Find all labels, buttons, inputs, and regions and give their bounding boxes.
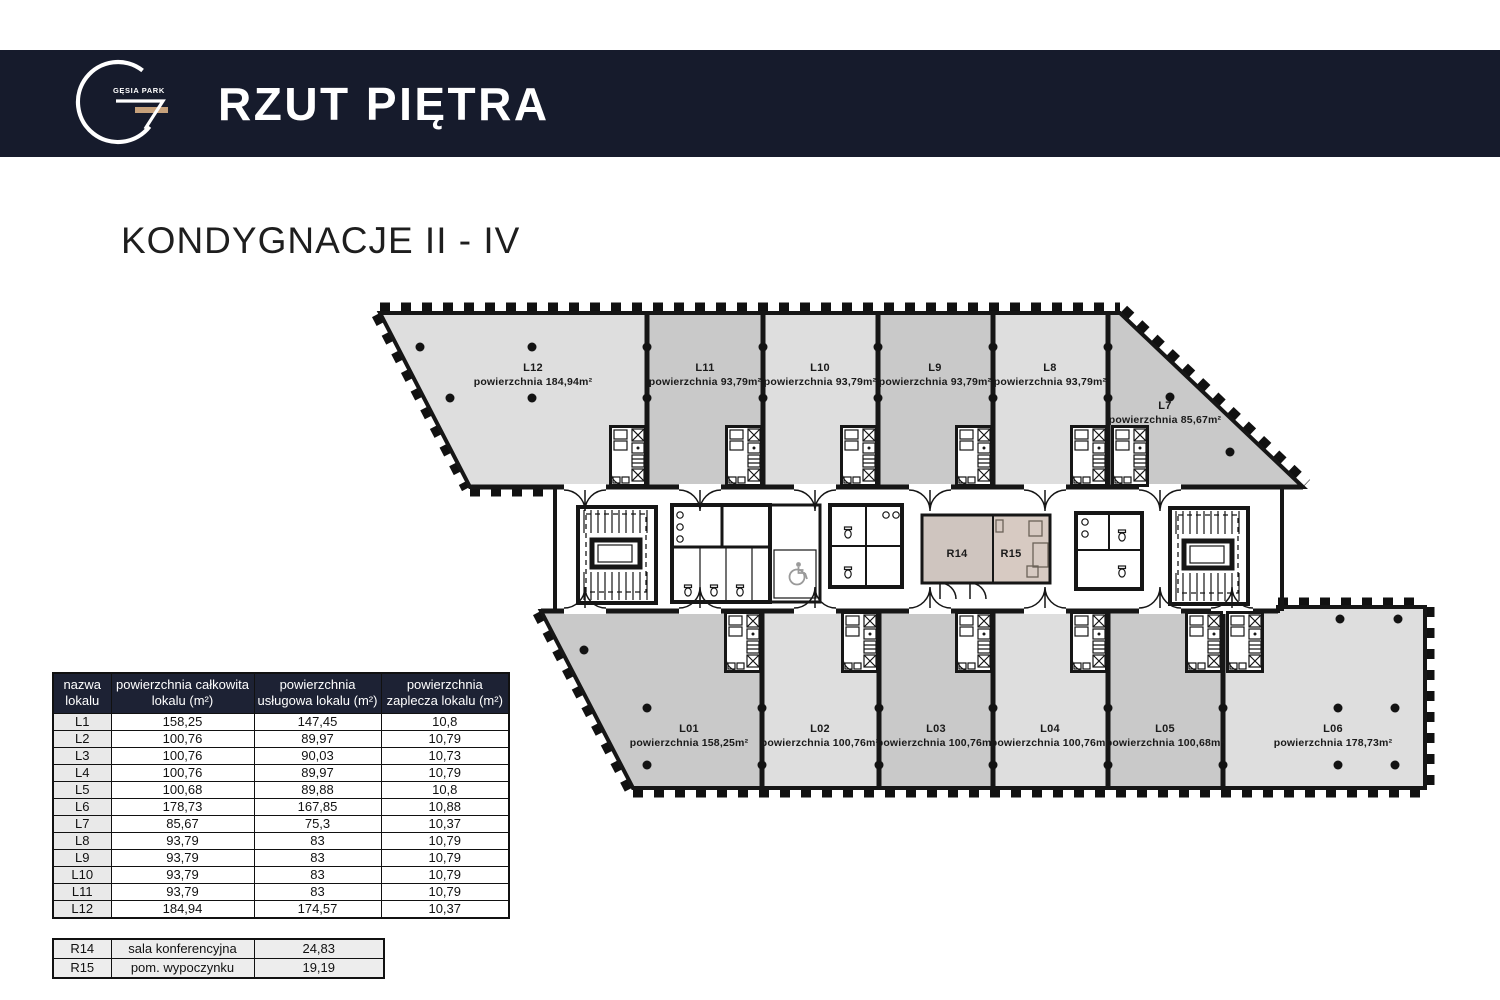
table-cell: 93,79 <box>111 832 254 849</box>
table-cell: L9 <box>53 849 111 866</box>
table-cell: 90,03 <box>254 747 381 764</box>
unit-label-area: powierzchnia 184,94m² <box>474 376 593 388</box>
unit-label-name: L05 <box>1155 723 1175 735</box>
unit-label-area: powierzchnia 93,79m² <box>994 376 1107 388</box>
table-row: L785,6775,310,37 <box>53 815 509 832</box>
table-cell: L4 <box>53 764 111 781</box>
unit-label-name: L10 <box>810 362 830 374</box>
unit-label-name: L02 <box>810 723 830 735</box>
table-row: L3100,7690,0310,73 <box>53 747 509 764</box>
kitchenette-icon <box>1072 427 1107 486</box>
table-row: L993,798310,79 <box>53 849 509 866</box>
staircase-right <box>1170 508 1248 604</box>
table-cell: 184,94 <box>111 900 254 918</box>
table-cell: 83 <box>254 883 381 900</box>
kitchenette-icon <box>957 427 992 486</box>
header-bar: GĘSIA PARK RZUT PIĘTRA <box>0 50 1500 157</box>
table-row: L1158,25147,4510,8 <box>53 713 509 730</box>
table-cell: L2 <box>53 730 111 747</box>
table-cell: 100,68 <box>111 781 254 798</box>
table-cell: 147,45 <box>254 713 381 730</box>
table-cell: 100,76 <box>111 764 254 781</box>
unit-label-area: powierzchnia 100,76m² <box>991 737 1110 749</box>
page-title: RZUT PIĘTRA <box>218 77 550 131</box>
table-cell: L6 <box>53 798 111 815</box>
table-cell: 167,85 <box>254 798 381 815</box>
table-row: L893,798310,79 <box>53 832 509 849</box>
table-row: L6178,73167,8510,88 <box>53 798 509 815</box>
table-cell: 100,76 <box>111 747 254 764</box>
logo-gold-bar <box>135 107 168 113</box>
table-cell: 83 <box>254 832 381 849</box>
table-cell: 10,79 <box>381 849 509 866</box>
unit-label-name: L06 <box>1323 723 1343 735</box>
wheelchair-icon <box>790 562 808 584</box>
table-cell: L5 <box>53 781 111 798</box>
unit-label-area: powierzchnia 93,79m² <box>649 376 762 388</box>
table-cell: 10,37 <box>381 815 509 832</box>
floor-plan: L12 powierzchnia 184,94m² L11 powierzchn… <box>370 300 1450 805</box>
table-cell: pom. wypoczynku <box>111 959 254 979</box>
table-row: L4100,7689,9710,79 <box>53 764 509 781</box>
table-cell: 10,8 <box>381 781 509 798</box>
unit-label-name: L12 <box>523 362 543 374</box>
unit-label-name: L7 <box>1158 400 1171 412</box>
column-header: powierzchnia zaplecza lokalu (m²) <box>381 673 509 713</box>
corridor-doors <box>564 484 1253 614</box>
column-header: powierzchnia całkowita lokalu (m²) <box>111 673 254 713</box>
kitchenette-icon <box>957 613 992 672</box>
unit-label-area: powierzchnia 100,76m² <box>761 737 880 749</box>
unit-label-name: L03 <box>926 723 946 735</box>
table-cell: 10,79 <box>381 832 509 849</box>
table-cell: 10,79 <box>381 764 509 781</box>
table-cell: 93,79 <box>111 866 254 883</box>
kitchenette-icon <box>1072 613 1107 672</box>
table-cell: 83 <box>254 849 381 866</box>
unit-label-name: L04 <box>1040 723 1060 735</box>
table-cell: L11 <box>53 883 111 900</box>
unit-label-name: L01 <box>679 723 699 735</box>
restrooms-right <box>1076 513 1142 589</box>
unit-label-area: powierzchnia 100,76m² <box>877 737 996 749</box>
column-header: nazwa lokalu <box>53 673 111 713</box>
kitchenette-icon <box>842 427 877 486</box>
table-cell: 10,37 <box>381 900 509 918</box>
unit-label-name: L11 <box>695 362 714 374</box>
kitchenette-icon <box>727 427 762 486</box>
storeys-subtitle: KONDYGNACJE II - IV <box>121 220 520 262</box>
table-cell: R15 <box>53 959 111 979</box>
table-cell: 89,97 <box>254 764 381 781</box>
special-rooms-table: R14sala konferencyjna24,83R15pom. wypocz… <box>52 938 385 979</box>
table-row: R14sala konferencyjna24,83 <box>53 939 384 959</box>
table-cell: 89,88 <box>254 781 381 798</box>
table-cell: 83 <box>254 866 381 883</box>
logo-text: GĘSIA PARK <box>113 86 165 95</box>
kitchenette-icon <box>726 613 761 672</box>
table-cell: 10,8 <box>381 713 509 730</box>
unit-label-area: powierzchnia 93,79m² <box>764 376 877 388</box>
table-row: L5100,6889,8810,8 <box>53 781 509 798</box>
table-cell: 10,73 <box>381 747 509 764</box>
conference-and-rest-rooms <box>922 515 1050 599</box>
table-cell: 100,76 <box>111 730 254 747</box>
table-cell: 178,73 <box>111 798 254 815</box>
table-cell: 93,79 <box>111 849 254 866</box>
table-cell: 174,57 <box>254 900 381 918</box>
table-cell: L3 <box>53 747 111 764</box>
table-row: L1093,798310,79 <box>53 866 509 883</box>
table-row: R15pom. wypoczynku19,19 <box>53 959 384 979</box>
logo-seven-stroke <box>116 101 163 129</box>
table-cell: 10,79 <box>381 883 509 900</box>
kitchenette-icon <box>1113 427 1148 486</box>
table-cell: 24,83 <box>254 939 384 959</box>
accessible-wc <box>770 505 820 602</box>
table-cell: sala konferencyjna <box>111 939 254 959</box>
table-cell: L12 <box>53 900 111 918</box>
table-row: L2100,7689,9710,79 <box>53 730 509 747</box>
page: { "header": { "logo_text": "GĘSIA PARK",… <box>0 0 1500 1000</box>
table-cell: 75,3 <box>254 815 381 832</box>
unit-label-area: powierzchnia 85,67m² <box>1109 414 1222 426</box>
kitchenette-icon <box>611 427 646 486</box>
unit-label-area: powierzchnia 93,79m² <box>879 376 992 388</box>
unit-label-name: L8 <box>1043 362 1056 374</box>
table-cell: L7 <box>53 815 111 832</box>
unit-label-name: L9 <box>928 362 941 374</box>
restrooms-middle <box>830 505 902 587</box>
room-label-r15: R15 <box>1000 548 1021 560</box>
table-cell: 93,79 <box>111 883 254 900</box>
unit-l12 <box>380 313 647 487</box>
unit-label-area: powierzchnia 178,73m² <box>1274 737 1393 749</box>
table-cell: 10,79 <box>381 866 509 883</box>
table-cell: 89,97 <box>254 730 381 747</box>
kitchenette-icon <box>843 613 878 672</box>
table-cell: L1 <box>53 713 111 730</box>
staircase-left <box>578 507 656 603</box>
table-cell: 158,25 <box>111 713 254 730</box>
table-row: L12184,94174,5710,37 <box>53 900 509 918</box>
kitchenette-icon <box>1228 613 1263 672</box>
building-core <box>578 505 1248 604</box>
table-cell: 10,79 <box>381 730 509 747</box>
room-label-r14: R14 <box>946 548 968 560</box>
table-cell: R14 <box>53 939 111 959</box>
kitchenette-icon <box>1187 613 1222 672</box>
gesia-park-logo: GĘSIA PARK <box>70 57 176 149</box>
unit-label-area: powierzchnia 100,68m² <box>1106 737 1225 749</box>
table-cell: L8 <box>53 832 111 849</box>
table-cell: 19,19 <box>254 959 384 979</box>
table-cell: 10,88 <box>381 798 509 815</box>
table-cell: 85,67 <box>111 815 254 832</box>
unit-label-area: powierzchnia 158,25m² <box>630 737 749 749</box>
table-row: L1193,798310,79 <box>53 883 509 900</box>
table-header-row: nazwa lokalu powierzchnia całkowita loka… <box>53 673 509 713</box>
table-cell: L10 <box>53 866 111 883</box>
unit-areas-table: nazwa lokalu powierzchnia całkowita loka… <box>52 672 510 919</box>
restrooms-left <box>672 505 770 602</box>
column-header: powierzchnia usługowa lokalu (m²) <box>254 673 381 713</box>
